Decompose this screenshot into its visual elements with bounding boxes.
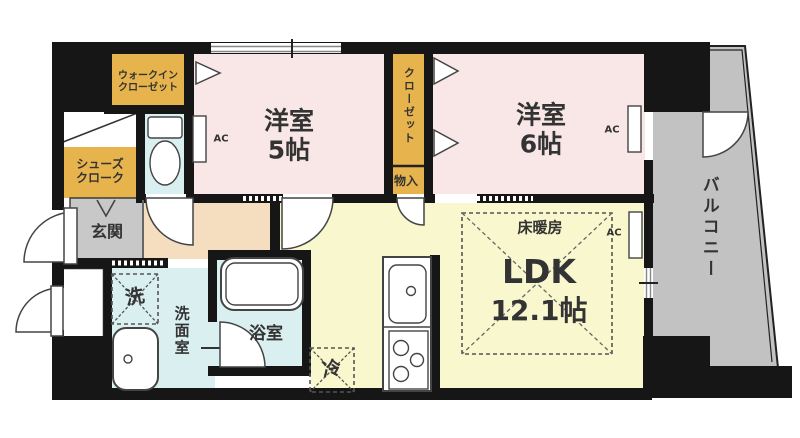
washbasin-fixture <box>113 328 158 390</box>
western-room-5-name: 洋室 <box>264 107 314 136</box>
wall-mass-bottom-left <box>52 336 112 400</box>
western-room-6-label: 洋室 6帖 <box>516 101 566 159</box>
western-room-6-name: 洋室 <box>516 101 566 130</box>
walk-in-closet-line2: クローゼット <box>118 82 178 94</box>
washroom-label: 洗面室 <box>172 306 189 357</box>
ldk-size-label: 12.1帖 <box>490 295 587 327</box>
ac-unit-room5 <box>193 116 206 162</box>
entrance-label: 玄関 <box>91 223 123 241</box>
washing-machine-label: 洗 <box>124 286 147 311</box>
bathroom-label: 浴室 <box>249 325 283 345</box>
western-room-6-size: 6帖 <box>516 130 566 159</box>
closet-label: クローゼット <box>402 67 415 145</box>
ldk-name-label: LDK <box>502 253 576 291</box>
kitchen-counter <box>383 257 431 391</box>
walk-in-closet-label: ウォークイン クローゼット <box>118 71 178 94</box>
western-room-5-label: 洋室 5帖 <box>264 107 314 165</box>
shoe-closet-label: シューズ クローク <box>76 158 124 186</box>
ac-label-ldk: AC <box>606 227 621 239</box>
balcony-label: バルコニー <box>698 176 718 281</box>
floor-heating-label: 床暖房 <box>517 219 562 236</box>
refrigerator-label: 冷 <box>321 358 344 383</box>
toilet-fixture <box>148 117 182 185</box>
ac-unit-room6 <box>628 106 641 152</box>
shoe-closet-line2: クローク <box>76 172 124 186</box>
wall-mass-top-left <box>52 42 112 112</box>
shoe-closet-line1: シューズ <box>76 158 124 172</box>
floorplan-drawing <box>0 0 800 438</box>
western-room-5-size: 5帖 <box>264 136 314 165</box>
bathtub-fixture <box>221 258 303 310</box>
outdoor-storage-area <box>58 268 104 340</box>
wall-mass-top-right <box>648 42 710 112</box>
ac-label-room5: AC <box>213 133 228 145</box>
outdoor-storage-door-panel <box>51 286 63 336</box>
storage-label: 物入 <box>394 175 418 189</box>
wall-step-bottom-right <box>705 366 792 398</box>
ac-unit-ldk <box>629 212 642 258</box>
floorplan: ウォークイン クローゼット シューズ クローク クローゼット 物入 洋室 5帖 … <box>0 0 800 438</box>
ac-label-room6: AC <box>604 124 619 136</box>
entrance-door-panel <box>64 208 77 264</box>
wall-mass-balcony-bottom <box>643 336 710 398</box>
walk-in-closet-line1: ウォークイン <box>118 71 178 83</box>
